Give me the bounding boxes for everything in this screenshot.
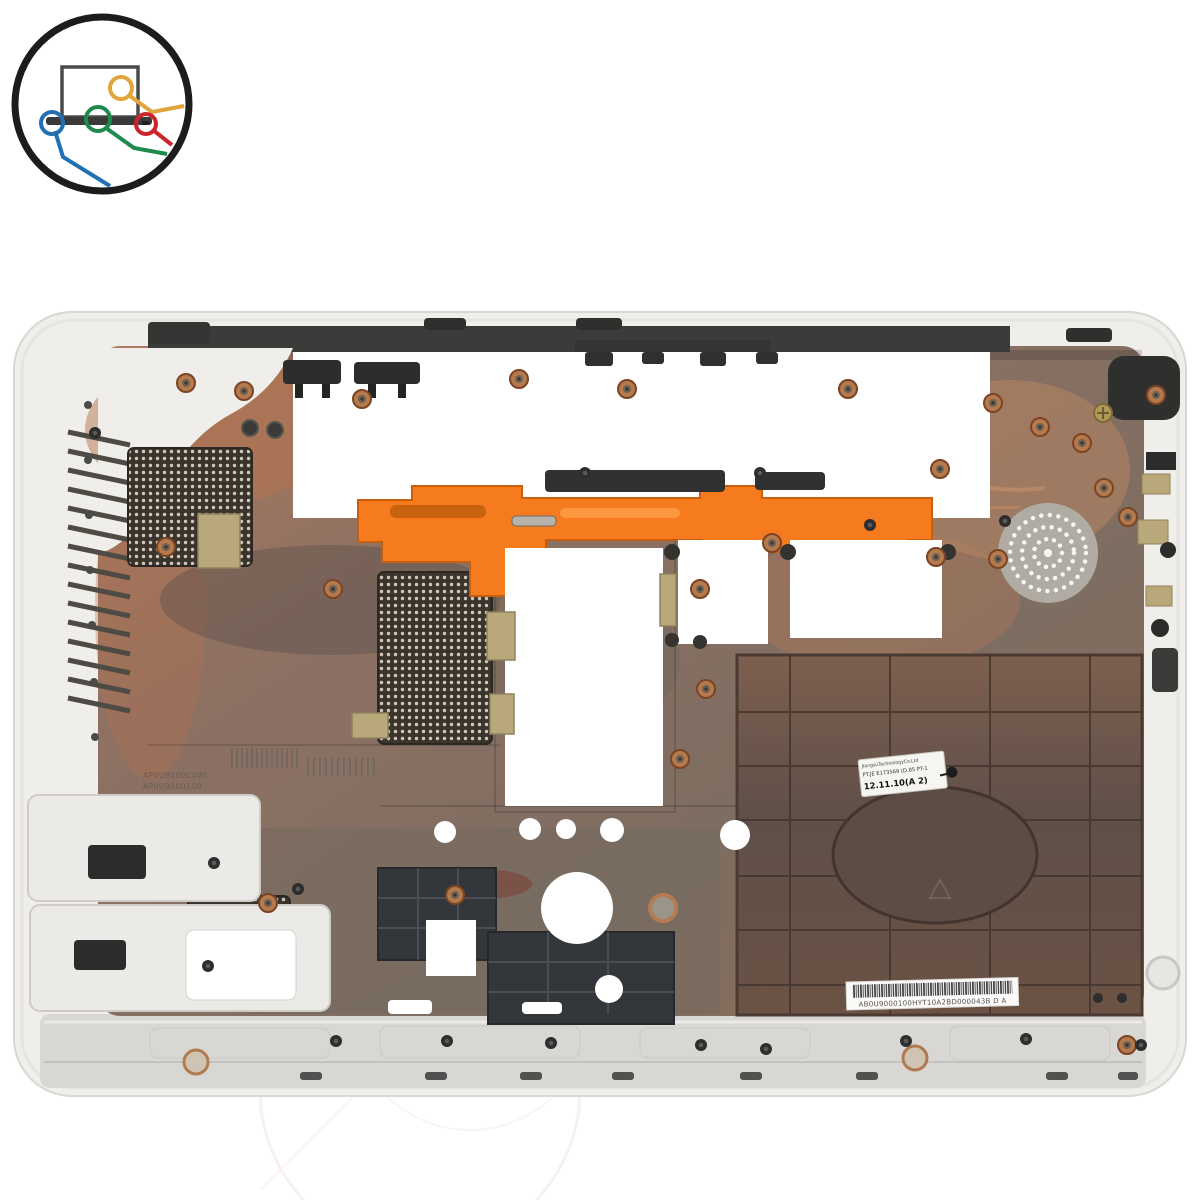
dark-bracket-piece [545,470,725,492]
hdd-bay-cutout [505,548,663,806]
hinge-cup-dark [1108,356,1180,420]
orange-bracket-slot [390,505,486,518]
speaker-grille [998,503,1098,603]
port-opening [74,940,126,970]
vent-grille-middle [378,572,492,744]
screw-boss-ring [650,895,676,921]
logo-plug-red-pin [142,121,149,125]
logo-laptop-screen [62,67,138,117]
subwoofer-oval [833,787,1037,923]
port-opening [88,845,146,879]
round-cutout-small [595,975,623,1003]
laptop-bottom-case-photo: AP0U9000C400 AP0U9000100 08T08-B65-10W P… [0,0,1200,1200]
molded-line-1: AP0U9000C400 [143,771,208,780]
bottom-door-grid-panel [737,655,1142,1015]
metal-pin [512,516,556,526]
product-photo-stage: AP0U9000C400 AP0U9000100 08T08-B65-10W P… [0,0,1200,1200]
square-cutout [426,920,476,976]
molded-line-2: AP0U9000100 [143,782,202,791]
mid-cutout-wide [790,540,942,638]
screw-hole-boss [184,1050,208,1074]
hinge-edge-strip [40,1014,1146,1088]
corner-screw-hole [1147,957,1179,989]
screw-hole-boss [903,1046,927,1070]
barcode-label: AB0U9000100HYT10A2BD000043B D A [846,977,1019,1009]
laptop-cables-logo [15,17,189,191]
round-cutout-large [541,872,613,944]
